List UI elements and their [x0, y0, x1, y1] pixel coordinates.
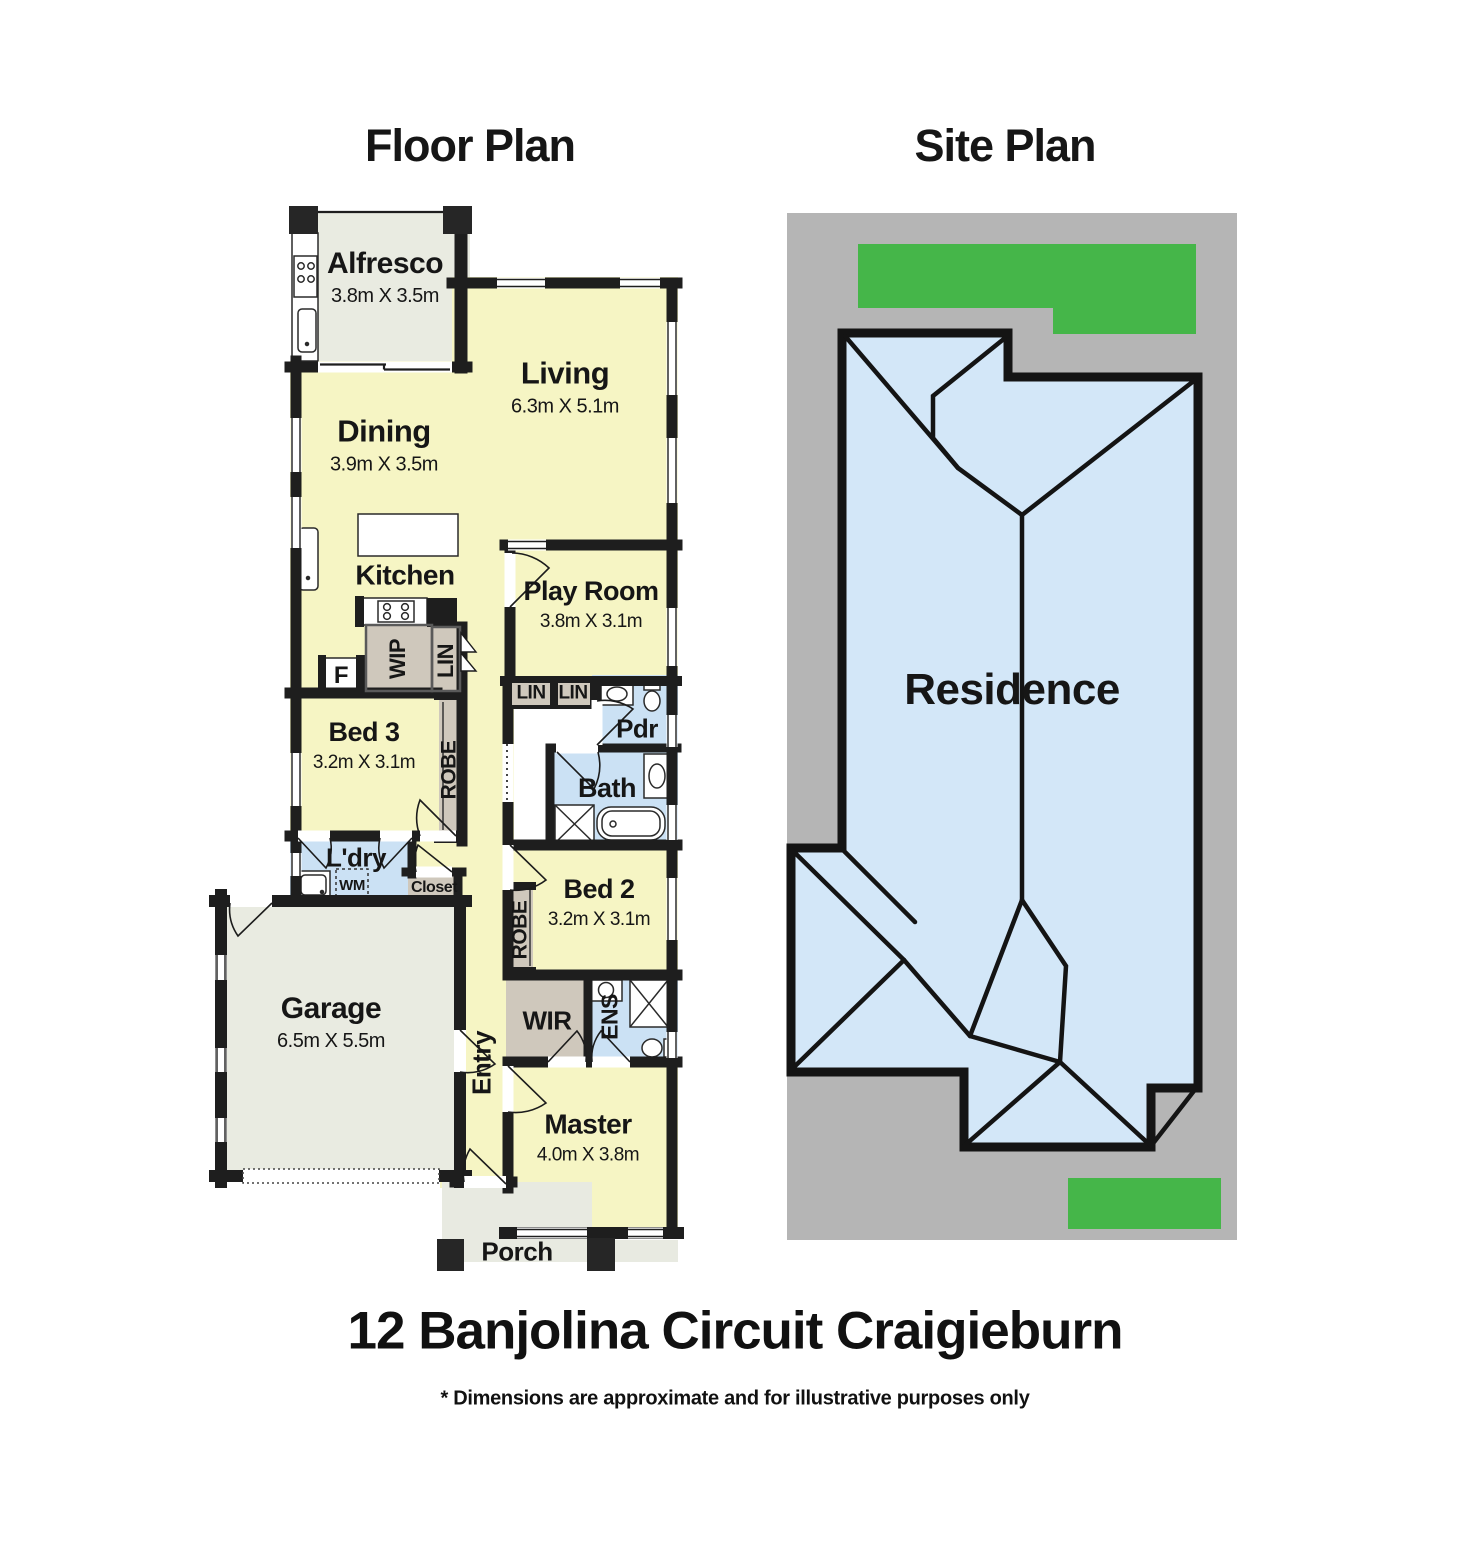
- room-name: Porch: [481, 1238, 552, 1267]
- room-dims: 3.2m X 3.1m: [313, 753, 415, 774]
- label-entry: Entry: [468, 1031, 497, 1095]
- room-dims: 6.3m X 5.1m: [511, 396, 619, 418]
- room-name: LIN: [434, 644, 458, 678]
- room-dims: 4.0m X 3.8m: [537, 1145, 639, 1166]
- site-plan-title: Site Plan: [914, 120, 1095, 172]
- room-dims: 3.8m X 3.1m: [523, 612, 658, 633]
- room-name: Bed 2: [548, 875, 650, 905]
- label-living: Living6.3m X 5.1m: [511, 356, 619, 417]
- label-closet: Closet: [411, 879, 457, 897]
- room-name: Dining: [330, 414, 438, 448]
- label-wm: WM: [339, 878, 365, 895]
- room-name: Play Room: [523, 577, 658, 607]
- room-name: LIN: [516, 684, 545, 705]
- room-name: ROBE: [437, 741, 460, 800]
- floor-plan-title: Floor Plan: [365, 120, 575, 172]
- room-name: F: [334, 663, 348, 689]
- room-name: Living: [511, 356, 619, 390]
- page: { "page": { "floor_plan_title": "Floor P…: [0, 0, 1472, 1547]
- label-robe-bed3: ROBE: [437, 741, 460, 800]
- label-pdr: Pdr: [616, 715, 658, 744]
- label-wip: WIP: [386, 639, 410, 679]
- room-name: Residence: [904, 666, 1120, 714]
- label-kitchen: Kitchen: [355, 561, 454, 592]
- label-garage: Garage6.5m X 5.5m: [277, 992, 385, 1052]
- label-play-room: Play Room3.8m X 3.1m: [523, 577, 658, 633]
- label-dining: Dining3.9m X 3.5m: [330, 414, 438, 475]
- label-alfresco: Alfresco3.8m X 3.5m: [327, 247, 443, 307]
- room-name: Entry: [468, 1031, 497, 1095]
- room-name: ENS: [597, 994, 622, 1040]
- room-name: Master: [537, 1110, 639, 1141]
- room-name: WM: [339, 878, 365, 895]
- room-dims: 3.9m X 3.5m: [330, 454, 438, 476]
- label-lin-a: LIN: [516, 684, 545, 705]
- room-dims: 3.8m X 3.5m: [327, 285, 443, 307]
- label-lin-hall: LIN: [434, 644, 458, 678]
- room-name: Closet: [411, 879, 457, 897]
- room-name: Kitchen: [355, 561, 454, 592]
- label-wir: WIR: [522, 1007, 571, 1036]
- room-name: Pdr: [616, 715, 658, 744]
- room-name: WIR: [522, 1007, 571, 1036]
- address-title: 12 Banjolina Circuit Craigieburn: [348, 1301, 1123, 1362]
- room-name: WIP: [386, 639, 410, 679]
- room-name: L'dry: [326, 844, 386, 873]
- disclaimer-text: * Dimensions are approximate and for ill…: [440, 1388, 1029, 1411]
- room-name: Alfresco: [327, 247, 443, 280]
- roof-outline: [791, 333, 1198, 1147]
- label-residence: Residence: [904, 666, 1120, 714]
- room-name: Garage: [277, 992, 385, 1025]
- site-plan-drawing: [780, 205, 1245, 1275]
- label-ens: ENS: [597, 994, 622, 1040]
- room-name: Bed 3: [313, 718, 415, 748]
- room-dims: 6.5m X 5.5m: [277, 1030, 385, 1052]
- label-robe-bed2: ROBE: [508, 901, 531, 960]
- label-porch: Porch: [481, 1238, 552, 1267]
- room-name: Bath: [578, 774, 636, 804]
- label-master: Master4.0m X 3.8m: [537, 1110, 639, 1167]
- room-dims: 3.2m X 3.1m: [548, 910, 650, 931]
- label-bath: Bath: [578, 774, 636, 804]
- label-ldry: L'dry: [326, 844, 386, 873]
- label-bed-2: Bed 23.2m X 3.1m: [548, 875, 650, 931]
- room-name: ROBE: [508, 901, 531, 960]
- label-bed-3: Bed 33.2m X 3.1m: [313, 718, 415, 774]
- label-lin-b: LIN: [558, 684, 587, 705]
- label-f: F: [334, 663, 348, 689]
- room-name: LIN: [558, 684, 587, 705]
